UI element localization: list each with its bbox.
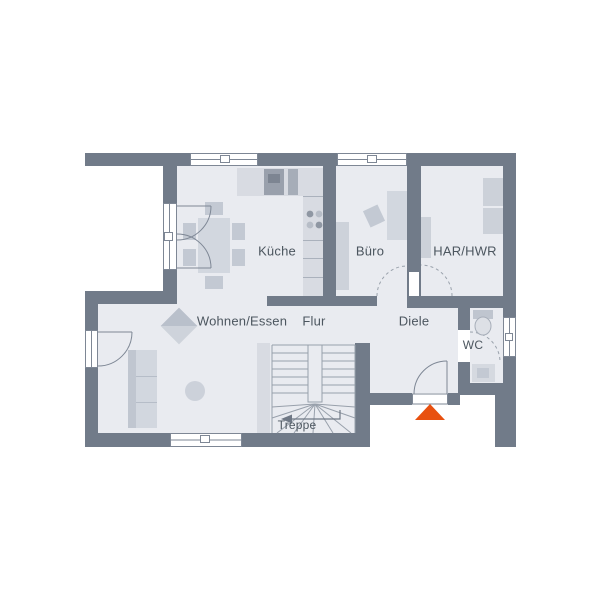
opening-french-door — [163, 203, 177, 270]
room-label-buero: Büro — [356, 244, 384, 259]
wall-west — [85, 291, 98, 447]
dining-chair — [232, 249, 245, 266]
window-wc — [503, 317, 516, 357]
office-shelf — [336, 222, 349, 290]
wall-utility-south — [407, 296, 516, 308]
dining-chair — [232, 223, 245, 240]
wall-frame-inset — [409, 272, 419, 298]
floor-plan-canvas: Küche Büro HAR/HWR Wohnen/Essen Flur Die… — [0, 0, 600, 600]
kitchen-appliance — [288, 169, 298, 195]
desk — [387, 191, 407, 240]
room-label-flur: Flur — [302, 314, 325, 329]
round-rug — [185, 381, 205, 401]
wall-stair-east — [355, 343, 370, 447]
kitchen-counter-side — [303, 196, 323, 296]
window-living-south — [170, 433, 242, 447]
dining-chair — [183, 223, 196, 240]
wc-sink-basin — [477, 368, 489, 378]
utility-cabinet — [421, 217, 431, 258]
sofa-back — [128, 350, 136, 428]
dining-table — [198, 218, 230, 273]
wall-wc-south — [458, 383, 516, 395]
opening-terrace-door — [85, 330, 98, 368]
dining-chair — [183, 249, 196, 266]
room-label-kueche: Küche — [258, 244, 296, 259]
dining-chair — [205, 202, 223, 215]
dryer — [483, 208, 503, 234]
window-kitchen — [190, 153, 258, 166]
washer — [483, 178, 503, 206]
entrance-marker — [415, 404, 445, 420]
dining-chair — [205, 276, 223, 289]
wall-kitchen-corridor — [267, 296, 377, 306]
sofa — [136, 350, 157, 428]
window-office — [337, 153, 407, 166]
wall-living-north — [85, 291, 177, 304]
room-label-diele: Diele — [399, 314, 430, 329]
wall-north — [85, 153, 516, 166]
wall-kitchen-office — [323, 166, 336, 306]
opening-entry-door — [412, 393, 448, 405]
room-label-treppe: Treppe — [278, 418, 317, 432]
room-label-wc: WC — [463, 338, 483, 352]
wall-porch-column — [495, 395, 516, 447]
room-label-har-hwr: HAR/HWR — [433, 244, 497, 259]
stair-side-wall — [257, 343, 270, 433]
room-label-wohnen-essen: Wohnen/Essen — [197, 314, 287, 329]
kitchen-oven-detail — [268, 174, 280, 183]
